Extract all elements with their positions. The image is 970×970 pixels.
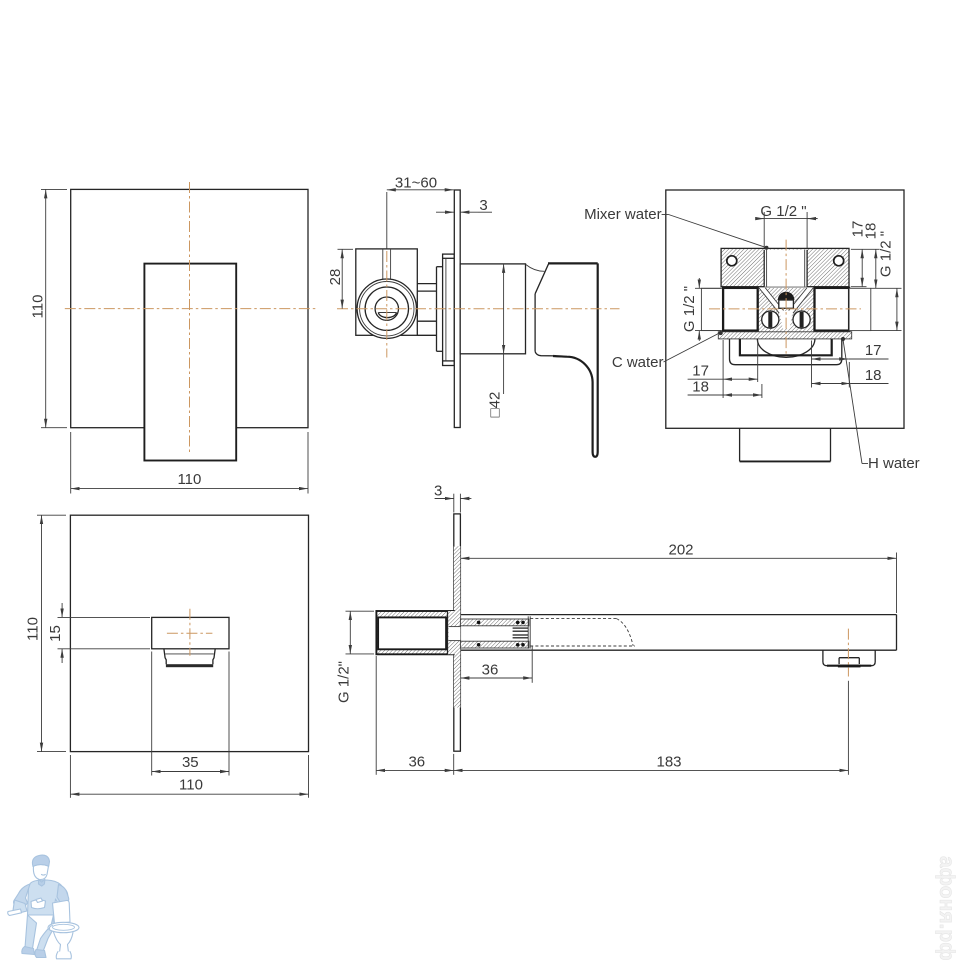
- svg-text:110: 110: [177, 471, 201, 488]
- svg-text:афоня.рф: афоня.рф: [935, 856, 958, 961]
- svg-text:□42: □42: [487, 392, 504, 418]
- svg-text:17: 17: [865, 342, 882, 359]
- svg-text:31~60: 31~60: [395, 175, 437, 192]
- svg-text:35: 35: [182, 754, 199, 771]
- svg-text:28: 28: [327, 269, 344, 286]
- svg-text:G 1/2 ": G 1/2 ": [681, 286, 698, 332]
- svg-text:H water: H water: [868, 455, 920, 472]
- svg-text:183: 183: [656, 753, 681, 770]
- svg-text:G 1/2 ": G 1/2 ": [878, 231, 895, 277]
- svg-text:110: 110: [179, 776, 203, 793]
- svg-text:3: 3: [434, 483, 442, 500]
- svg-text:C water: C water: [612, 354, 664, 371]
- svg-text:202: 202: [668, 542, 693, 559]
- svg-text:36: 36: [482, 662, 499, 679]
- svg-text:Mixer water: Mixer water: [584, 206, 662, 223]
- svg-text:110: 110: [25, 617, 42, 641]
- svg-text:17: 17: [692, 363, 709, 380]
- svg-text:G 1/2": G 1/2": [336, 661, 353, 703]
- svg-text:36: 36: [408, 753, 425, 770]
- svg-text:G 1/2 ": G 1/2 ": [760, 203, 806, 220]
- svg-text:3: 3: [479, 197, 487, 214]
- svg-text:18: 18: [865, 367, 882, 384]
- svg-text:15: 15: [47, 625, 64, 642]
- svg-text:18: 18: [692, 378, 709, 395]
- svg-text:110: 110: [29, 295, 46, 319]
